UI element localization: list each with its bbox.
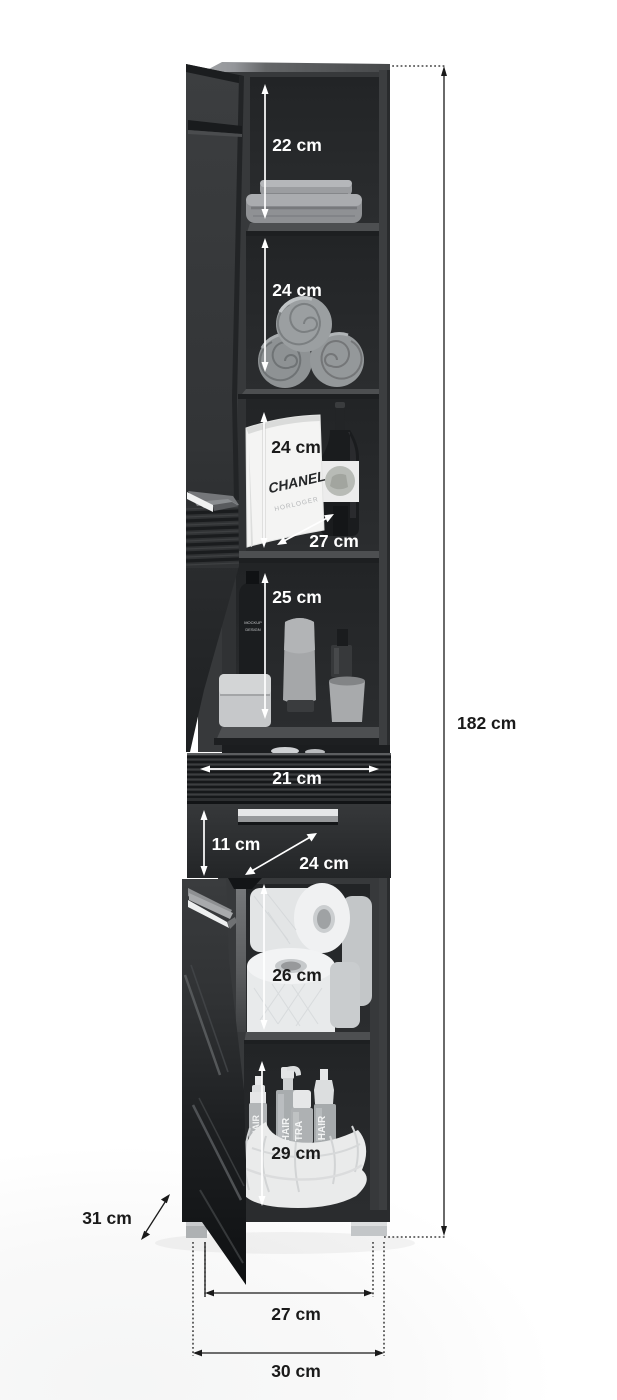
svg-text:HAIR: HAIR (317, 1115, 328, 1140)
svg-text:29 cm: 29 cm (271, 1143, 321, 1163)
svg-text:27 cm: 27 cm (309, 531, 359, 551)
svg-text:30 cm: 30 cm (271, 1361, 321, 1381)
svg-text:24 cm: 24 cm (271, 437, 321, 457)
svg-text:DESIGN: DESIGN (245, 627, 260, 632)
svg-text:24 cm: 24 cm (299, 853, 349, 873)
svg-text:24 cm: 24 cm (272, 280, 322, 300)
svg-text:HAIR: HAIR (281, 1117, 292, 1142)
svg-text:22 cm: 22 cm (272, 135, 322, 155)
svg-text:26 cm: 26 cm (272, 965, 322, 985)
svg-text:11 cm: 11 cm (212, 834, 261, 854)
svg-text:31 cm: 31 cm (82, 1208, 132, 1228)
svg-text:21 cm: 21 cm (272, 768, 322, 788)
svg-text:TRA: TRA (294, 1121, 305, 1142)
svg-text:25 cm: 25 cm (272, 587, 322, 607)
svg-text:MOCKUP: MOCKUP (244, 620, 262, 625)
svg-text:27 cm: 27 cm (271, 1304, 321, 1324)
svg-text:182 cm: 182 cm (457, 713, 516, 733)
